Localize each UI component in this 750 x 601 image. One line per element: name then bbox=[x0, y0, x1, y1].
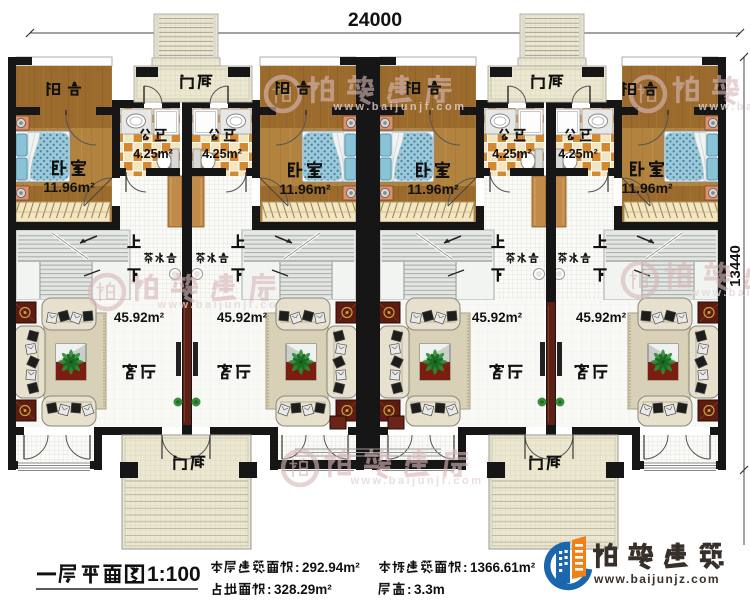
svg-text:3.3m: 3.3m bbox=[414, 582, 445, 597]
svg-text:www.baijunjf.com: www.baijunjf.com bbox=[349, 475, 483, 487]
svg-text::: : bbox=[463, 560, 468, 575]
svg-text:292.94m²: 292.94m² bbox=[302, 560, 360, 575]
svg-text:328.29m²: 328.29m² bbox=[274, 582, 332, 597]
svg-text:4.25m²: 4.25m² bbox=[558, 147, 598, 161]
svg-text:11.96m²: 11.96m² bbox=[621, 180, 673, 196]
svg-text:11.96m²: 11.96m² bbox=[43, 179, 95, 195]
svg-text:45.92m²: 45.92m² bbox=[472, 310, 523, 325]
svg-text:4.25m²: 4.25m² bbox=[202, 147, 242, 161]
svg-text::: : bbox=[407, 582, 412, 597]
svg-text:45.92m²: 45.92m² bbox=[217, 310, 268, 325]
svg-text:1366.61m²: 1366.61m² bbox=[470, 560, 536, 575]
svg-text:11.96m²: 11.96m² bbox=[407, 181, 459, 197]
svg-text::: : bbox=[295, 560, 300, 575]
svg-text:www.baijunjf.com: www.baijunjf.com bbox=[332, 101, 466, 113]
svg-text:1:100: 1:100 bbox=[147, 563, 201, 586]
svg-text:www.baijunjf.com: www.baijunjf.com bbox=[697, 101, 750, 113]
svg-text:24000: 24000 bbox=[348, 9, 402, 31]
svg-text:45.92m²: 45.92m² bbox=[576, 310, 627, 325]
svg-text:11.96m²: 11.96m² bbox=[279, 181, 331, 197]
svg-text:45.92m²: 45.92m² bbox=[114, 310, 165, 325]
svg-text:www.baijunjz.com: www.baijunjz.com bbox=[593, 572, 720, 586]
svg-text:www.baijunjf.com: www.baijunjf.com bbox=[689, 287, 750, 299]
svg-text:4.25m²: 4.25m² bbox=[492, 147, 532, 161]
svg-text::: : bbox=[267, 582, 272, 597]
svg-text:4.25m²: 4.25m² bbox=[133, 147, 173, 161]
